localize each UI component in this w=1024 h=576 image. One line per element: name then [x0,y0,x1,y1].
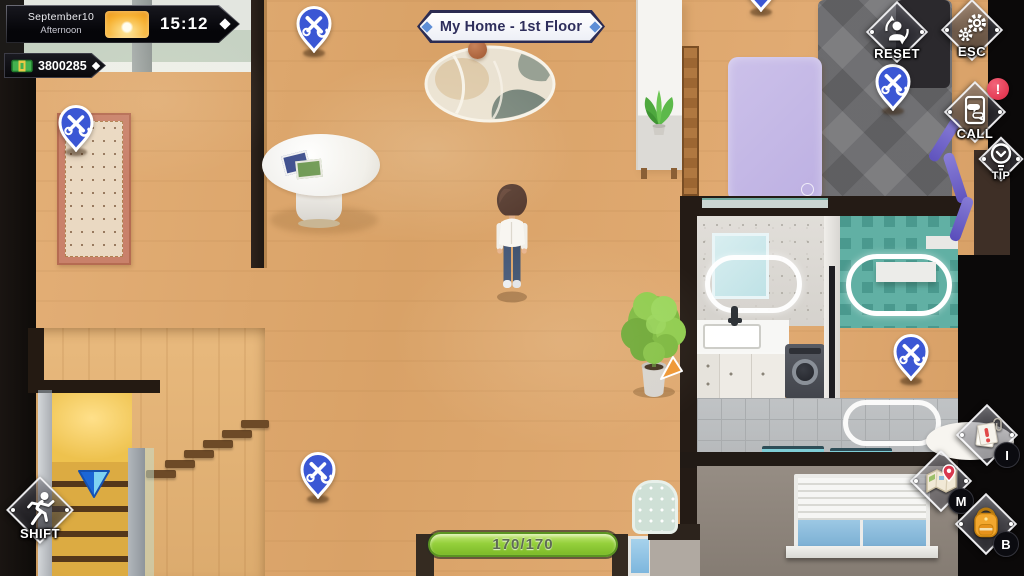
location-title: My Home - 1st Floor [440,19,582,35]
stamina-value: 170/170 [492,536,553,553]
time-banner-body: September10 Afternoon 15:12 [7,6,239,42]
repair-pin-icon[interactable] [295,5,333,53]
bag-button[interactable]: B [948,494,1024,554]
floating-step [203,440,233,448]
bathroom-transom-window [702,198,828,208]
dot-accent [914,479,918,483]
date-display: September10 Afternoon [17,11,105,37]
cursor-arrow-icon [658,354,684,387]
potted-plant[interactable] [610,290,696,405]
console-leg [671,168,677,179]
diamond-accent-icon [91,61,99,69]
dot-accent [1016,157,1020,161]
small-window [628,536,652,576]
dot-accent [920,30,924,34]
person-refresh-icon [881,14,913,51]
interior-wall-strip [251,0,267,268]
reset-button-label: RESET [874,46,920,61]
time-banner: September10 Afternoon 15:12 [6,5,240,43]
stamina-bar: 170/170 [428,532,618,557]
money-badge: 3800285 [4,53,106,78]
dot-accent [11,508,15,512]
dot-accent [1010,433,1014,437]
interior-door[interactable] [682,46,699,196]
player-character [490,181,534,310]
floating-step [222,430,252,438]
console-leg [641,168,647,179]
bathroom-cabinets[interactable] [697,352,785,400]
repair-pin-icon[interactable] [299,451,337,499]
washing-machine[interactable] [785,344,825,398]
call-alert-badge: ! [987,78,1009,100]
clock-time: 15:12 [160,14,208,34]
dot-accent [948,110,952,114]
washing-machine-panel [789,348,821,354]
dot-accent [65,508,69,512]
repair-pin-icon[interactable] [892,333,930,381]
reset-button[interactable]: RESET [859,2,935,61]
cash-icon [11,58,33,74]
window-mullion [860,520,863,546]
date-text: September10 [17,11,105,25]
inventory-key-label: I [994,442,1020,468]
console-plant[interactable] [638,78,680,143]
window-glass [798,520,926,546]
stair-glass-panel [145,448,154,576]
faucet-spout [728,318,742,323]
dot-accent [945,28,949,32]
bag-key-label: B [993,531,1019,557]
floating-step [241,420,269,428]
shift-button[interactable]: SHIFT [0,478,80,541]
magazine [295,159,323,180]
dot-accent [982,157,986,161]
phone-chat-icon [959,94,991,131]
tip-button[interactable]: TIP [972,137,1024,182]
faucet [731,306,738,326]
bathroom-oval-light [705,255,802,313]
dot-accent [995,28,999,32]
money-badge-body: 3800285 [5,54,105,77]
game-screen: September10 Afternoon 15:12 3800285 My H… [0,0,1024,576]
sink-basin[interactable] [703,324,761,349]
bathroom-shelf [876,262,936,282]
diamond-accent-icon [220,18,231,29]
esc-button[interactable]: ESC [934,0,1010,59]
dot-accent [960,433,964,437]
dot-accent [959,522,963,526]
runner-icon [22,490,58,531]
money-amount: 3800285 [38,59,87,73]
floating-step [184,450,214,458]
day-period-text: Afternoon [17,25,105,37]
floating-step [165,460,195,468]
stairs-down-marker-icon[interactable] [76,468,112,505]
washing-machine-door [792,359,818,385]
dot-accent [870,30,874,34]
stairs-landing[interactable] [52,393,132,465]
wall-corner [650,540,700,576]
call-button[interactable]: ! CALL [937,82,1013,141]
arched-rug [632,480,678,534]
yoga-mat[interactable] [728,57,822,202]
repair-pin-icon[interactable] [57,104,95,152]
location-banner: My Home - 1st Floor [417,10,605,43]
window-sill [786,546,938,558]
repair-pin-icon[interactable] [874,63,912,111]
round-abstract-rug [424,45,556,128]
sun-icon [105,11,149,38]
dot-accent [964,479,968,483]
table-base [298,219,340,228]
repair-pin-icon[interactable] [742,0,780,12]
location-banner-body: My Home - 1st Floor [420,13,603,41]
dot-accent [998,110,1002,114]
yoga-mat-logo [801,183,814,196]
stair-railing-post [128,448,145,576]
esc-button-label: ESC [958,44,986,59]
tip-button-label: TIP [992,170,1011,182]
shift-button-label: SHIFT [20,526,60,541]
dot-accent [1009,522,1013,526]
